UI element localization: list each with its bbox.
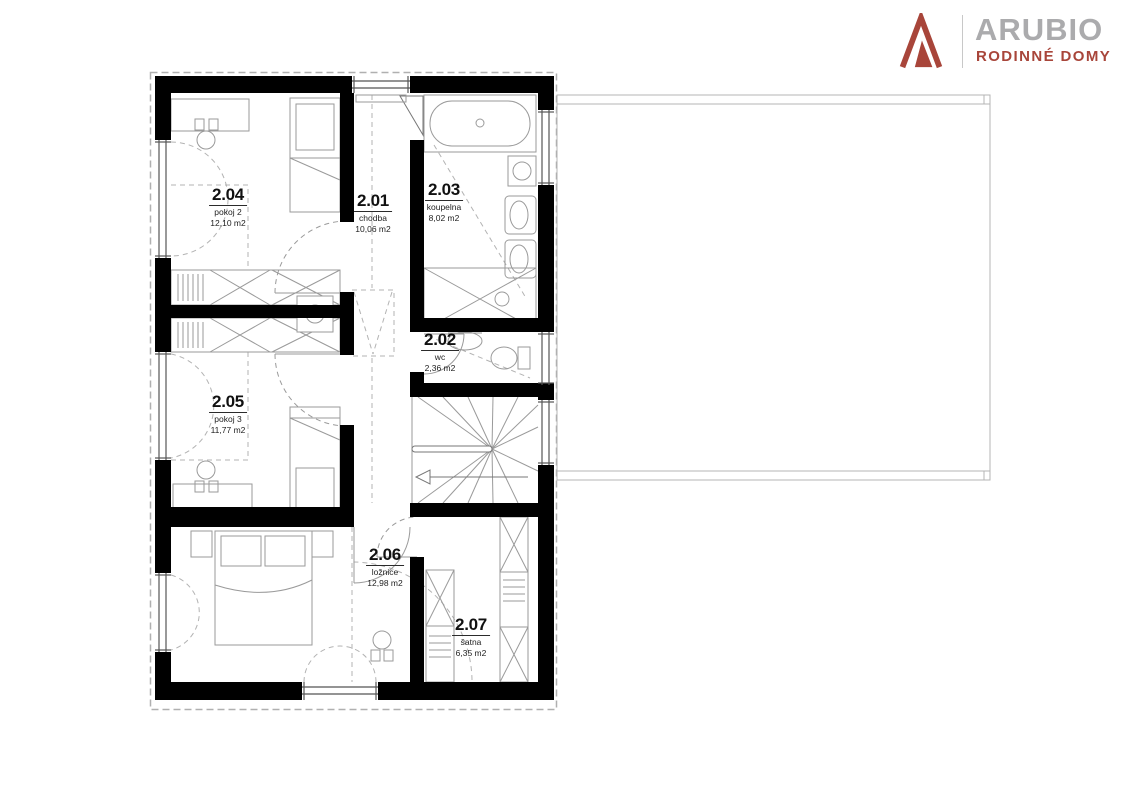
brand-logo: ARUBIO RODINNÉ DOMY xyxy=(893,10,1123,72)
room-label-2-04: 2.04 pokoj 2 12,10 m2 xyxy=(209,186,247,227)
room-name: ložnice xyxy=(366,568,404,577)
desk-2-04 xyxy=(171,99,249,131)
room-number: 2.04 xyxy=(209,186,247,206)
room-name: chodba xyxy=(354,214,392,223)
room-area: 10,06 m2 xyxy=(354,225,392,234)
room-number: 2.01 xyxy=(354,192,392,212)
nightstand xyxy=(312,531,333,557)
roof-outline-right xyxy=(557,95,990,480)
room-label-2-07: 2.07 šatna 6,35 m2 xyxy=(452,616,490,657)
room-label-2-01: 2.01 chodba 10,06 m2 xyxy=(354,192,392,233)
room-label-2-02: 2.02 wc 2,36 m2 xyxy=(421,331,459,372)
washer xyxy=(508,156,536,186)
room-name: wc xyxy=(421,353,459,362)
window-sill xyxy=(356,95,406,102)
room-area: 11,77 m2 xyxy=(209,426,247,435)
room-name: šatna xyxy=(452,638,490,647)
toilet xyxy=(491,347,517,369)
room-area: 8,02 m2 xyxy=(425,214,463,223)
room-label-2-05: 2.05 pokoj 3 11,77 m2 xyxy=(209,393,247,434)
room-area: 6,35 m2 xyxy=(452,649,490,658)
chair-icon xyxy=(197,131,215,149)
brand-tagline: RODINNÉ DOMY xyxy=(976,48,1111,65)
room-area: 12,10 m2 xyxy=(209,219,247,228)
floor-plan-page: 2.01 chodba 10,06 m2 2.02 wc 2,36 m2 2.0… xyxy=(0,0,1132,800)
room-area: 12,98 m2 xyxy=(366,579,404,588)
room-name: pokoj 2 xyxy=(209,208,247,217)
room-label-2-03: 2.03 koupelna 8,02 m2 xyxy=(425,181,463,222)
arubio-a-mark-icon xyxy=(897,13,945,69)
chair-icon xyxy=(373,631,391,649)
bed-single-2-04 xyxy=(290,98,340,212)
room-number: 2.03 xyxy=(425,181,463,201)
staircase xyxy=(412,397,538,503)
nightstand xyxy=(191,531,212,557)
stair-direction-arrow xyxy=(416,470,430,484)
bed-single-2-05 xyxy=(290,407,340,520)
room-number: 2.02 xyxy=(421,331,459,351)
bed-double-2-06 xyxy=(215,531,312,645)
room-name: pokoj 3 xyxy=(209,415,247,424)
floor-plan-drawing xyxy=(0,0,1132,800)
room-number: 2.05 xyxy=(209,393,247,413)
room-name: koupelna xyxy=(425,203,463,212)
chair-icon xyxy=(197,461,215,479)
room-area: 2,36 m2 xyxy=(421,364,459,373)
room-number: 2.07 xyxy=(452,616,490,636)
brand-name: ARUBIO xyxy=(975,12,1103,48)
logo-divider xyxy=(962,15,963,68)
room-number: 2.06 xyxy=(366,546,404,566)
room-label-2-06: 2.06 ložnice 12,98 m2 xyxy=(366,546,404,587)
